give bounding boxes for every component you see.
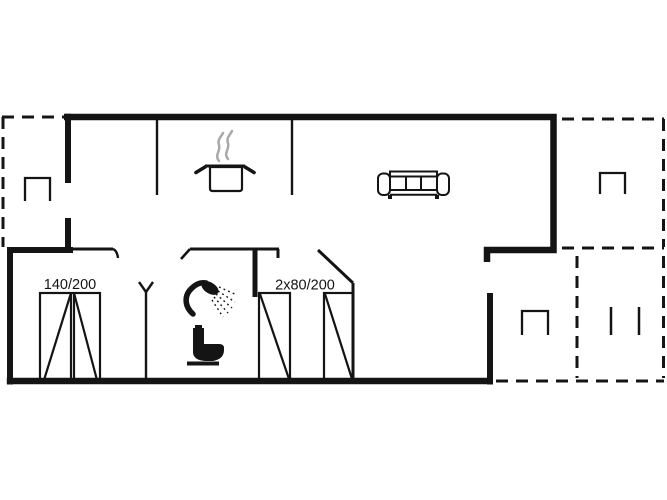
cooking-pot-icon [196,166,254,191]
interior-walls [73,120,353,381]
chair-icon [25,178,50,201]
steam-icon [217,131,232,161]
coat-rack-icon [139,282,153,381]
floor-plan: 140/200 2x80/200 [0,0,667,500]
chair-icon [522,311,548,335]
double-bed-size-label: 140/200 [44,277,96,293]
twin-bed-symbol [259,293,353,380]
twin-bed-size-label: 2x80/200 [275,278,335,294]
chair-icon [600,173,625,194]
floor-plan-page: 140/200 2x80/200 [0,0,667,500]
double-bed-symbol [40,293,100,380]
shower-icon [186,278,237,317]
bench-icon [611,307,639,335]
toilet-icon [187,325,224,366]
sofa-icon [378,172,449,200]
